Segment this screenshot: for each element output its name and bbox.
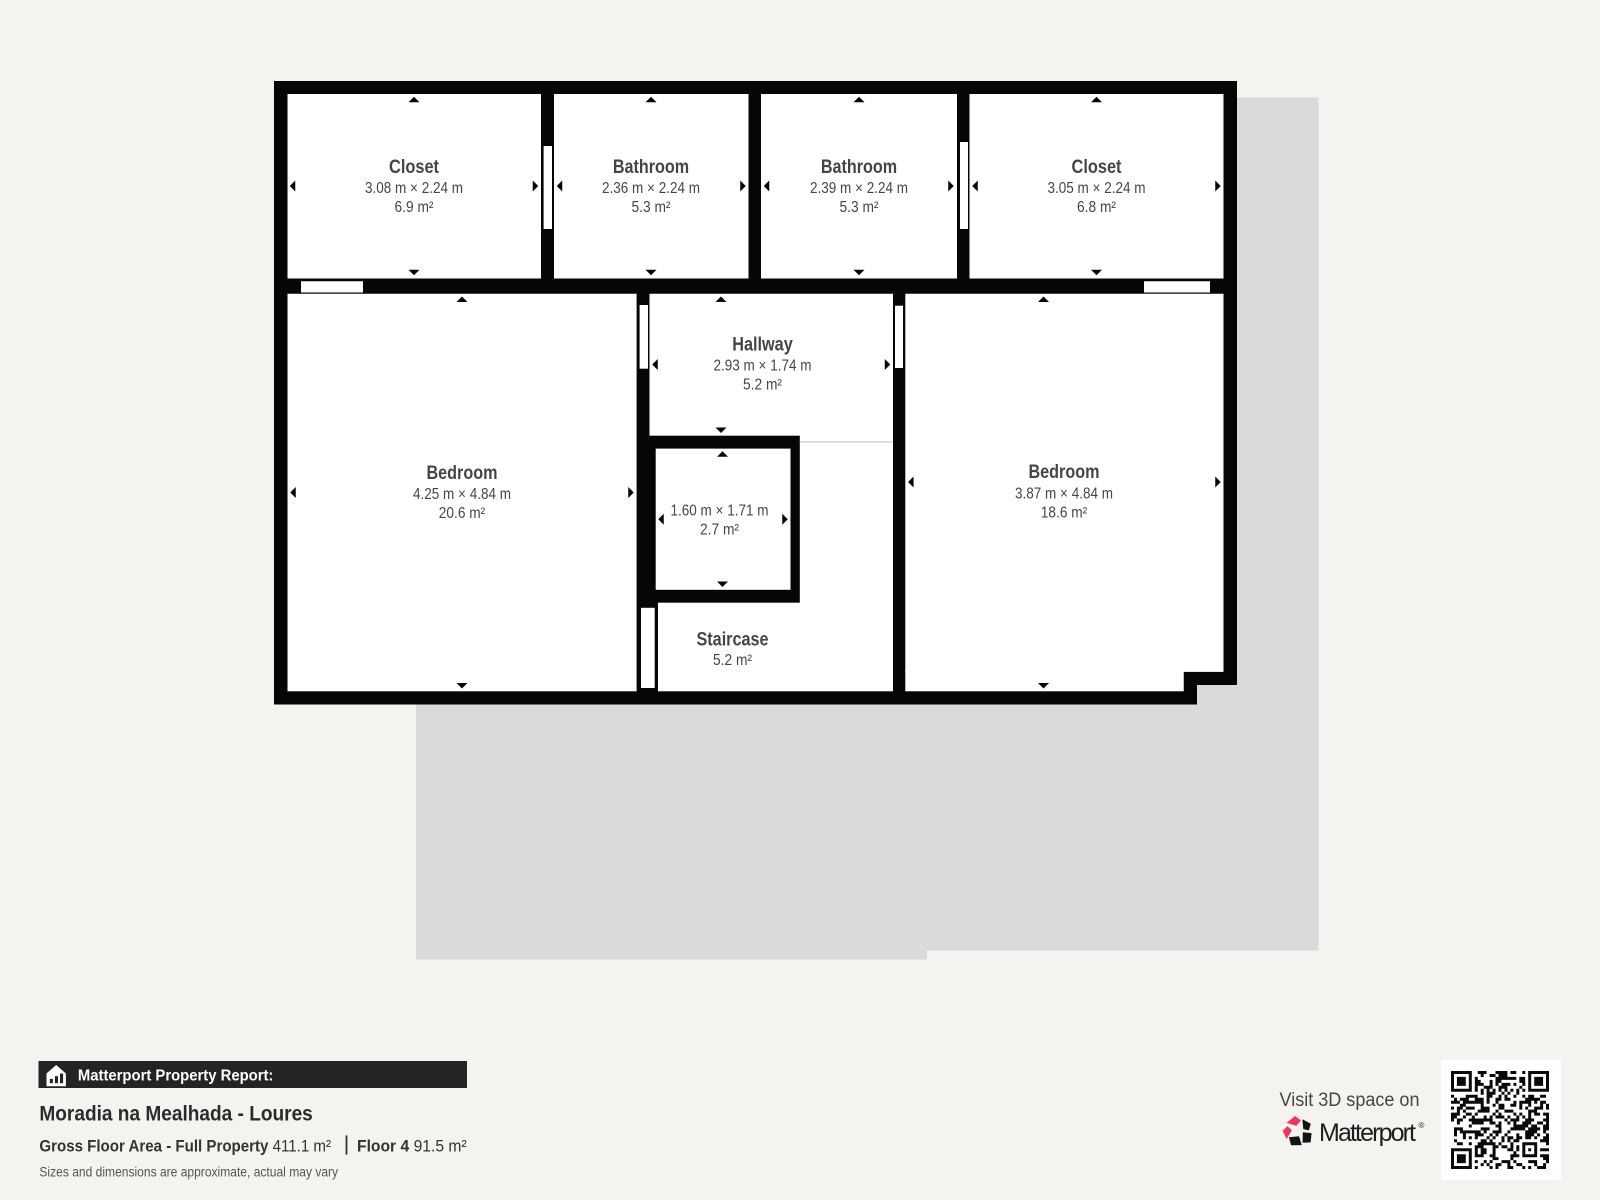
svg-text:Bathroom: Bathroom [613, 157, 689, 178]
svg-text:20.6 m²: 20.6 m² [439, 505, 485, 522]
svg-text:Closet: Closet [389, 157, 440, 178]
svg-text:Matterport Property Report:: Matterport Property Report: [78, 1068, 274, 1085]
svg-text:Visit 3D space on: Visit 3D space on [1280, 1090, 1420, 1111]
svg-text:2.93 m × 1.74 m: 2.93 m × 1.74 m [714, 358, 812, 375]
svg-text:2.39 m × 2.24 m: 2.39 m × 2.24 m [810, 180, 908, 197]
svg-text:5.3 m²: 5.3 m² [840, 199, 879, 216]
svg-text:Matterport: Matterport [1319, 1119, 1416, 1147]
svg-text:Sizes and dimensions are appro: Sizes and dimensions are approximate, ac… [39, 1165, 338, 1180]
svg-text:Bedroom: Bedroom [427, 463, 498, 484]
svg-text:Bathroom: Bathroom [821, 157, 897, 178]
svg-text:Bedroom: Bedroom [1029, 462, 1100, 483]
svg-text:3.08 m × 2.24 m: 3.08 m × 2.24 m [365, 180, 463, 197]
svg-text:Moradia na Mealhada - Loures: Moradia na Mealhada - Loures [39, 1103, 312, 1126]
svg-text:Hallway: Hallway [732, 335, 793, 356]
svg-text:Gross Floor Area - Full Proper: Gross Floor Area - Full Property 411.1 m… [39, 1138, 331, 1156]
svg-text:Floor 4 91.5 m²: Floor 4 91.5 m² [357, 1138, 467, 1156]
svg-text:1.60 m × 1.71 m: 1.60 m × 1.71 m [671, 503, 769, 520]
svg-text:4.25 m × 4.84 m: 4.25 m × 4.84 m [413, 486, 511, 503]
svg-text:®: ® [1419, 1121, 1425, 1130]
svg-text:6.9 m²: 6.9 m² [395, 199, 434, 216]
svg-text:2.36 m × 2.24 m: 2.36 m × 2.24 m [602, 180, 700, 197]
svg-text:5.2 m²: 5.2 m² [743, 377, 782, 394]
svg-text:Closet: Closet [1072, 157, 1123, 178]
svg-text:5.2 m²: 5.2 m² [713, 652, 752, 669]
svg-text:2.7 m²: 2.7 m² [700, 522, 739, 539]
svg-text:3.05 m × 2.24 m: 3.05 m × 2.24 m [1048, 180, 1146, 197]
svg-text:6.8 m²: 6.8 m² [1077, 199, 1116, 216]
svg-text:5.3 m²: 5.3 m² [632, 199, 671, 216]
svg-text:3.87 m × 4.84 m: 3.87 m × 4.84 m [1015, 486, 1113, 503]
svg-text:18.6 m²: 18.6 m² [1041, 505, 1087, 522]
svg-text:Staircase: Staircase [697, 630, 769, 651]
